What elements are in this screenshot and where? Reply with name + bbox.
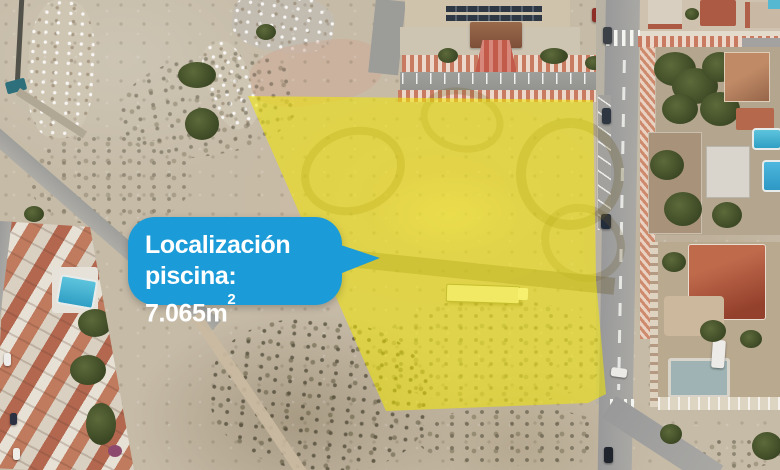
- tree-canopy: [662, 252, 686, 272]
- bush: [185, 108, 219, 140]
- bush: [256, 24, 276, 40]
- callout-line2: piscina: 7.065m2: [145, 261, 328, 329]
- bush: [24, 206, 44, 222]
- tree-canopy: [540, 48, 568, 64]
- parked-car: [604, 447, 613, 463]
- garden: [70, 355, 106, 385]
- parking-stall-lines: [402, 73, 598, 84]
- solar-panels: [446, 6, 542, 12]
- house-roof: [736, 108, 774, 130]
- parked-car: [603, 27, 612, 44]
- parked-car: [13, 448, 20, 460]
- tree-canopy: [712, 202, 742, 228]
- tree-canopy: [740, 330, 762, 348]
- swimming-pool: [768, 0, 780, 9]
- swimming-pool: [752, 128, 780, 150]
- callout-bubble: Localización piscina: 7.065m2: [128, 217, 342, 305]
- scrub-patch: [418, 408, 608, 466]
- tree-canopy: [662, 94, 698, 124]
- tree-canopy: [660, 424, 682, 444]
- callout-line1: Localización: [145, 230, 328, 261]
- tree-canopy: [685, 8, 699, 20]
- tree-canopy: [752, 432, 780, 460]
- bougainvillea-bush: [108, 445, 122, 457]
- parked-car: [10, 413, 17, 425]
- garden: [86, 403, 116, 445]
- parked-car: [602, 108, 611, 124]
- tree-canopy: [438, 48, 458, 63]
- house-roof: [700, 0, 736, 26]
- parked-car: [4, 353, 11, 366]
- house-roof: [648, 0, 682, 29]
- crenellated-wall: [650, 242, 658, 407]
- white-flat-roof-house: [706, 146, 750, 198]
- tree-canopy: [650, 150, 684, 180]
- parked-van: [711, 340, 726, 369]
- swimming-pool: [56, 274, 99, 310]
- superscript-2: 2: [227, 291, 235, 308]
- aerial-photo-canvas: Localización piscina: 7.065m2: [0, 0, 780, 470]
- roadside-wall: [658, 397, 780, 410]
- tree-canopy: [700, 320, 726, 342]
- house-roof: [724, 52, 770, 102]
- swimming-pool: [762, 160, 780, 192]
- solar-panels: [446, 15, 542, 21]
- tree-canopy: [664, 192, 702, 226]
- bush: [178, 62, 216, 88]
